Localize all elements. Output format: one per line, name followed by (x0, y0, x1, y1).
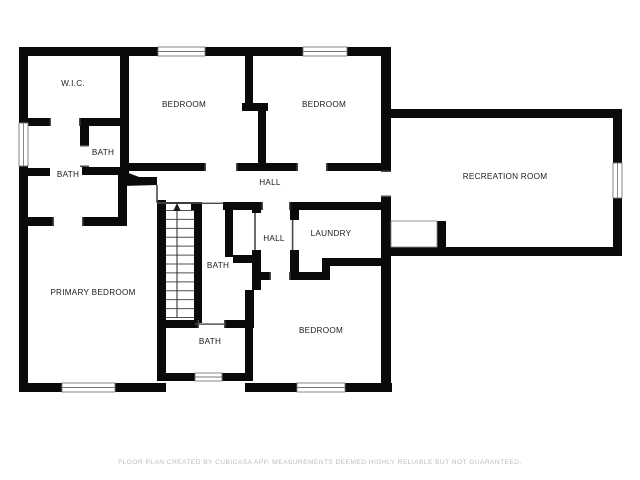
window (62, 383, 115, 392)
window (19, 123, 28, 166)
footer-disclaimer: FLOOR PLAN CREATED BY CUBICASA APP. MEAS… (118, 459, 522, 466)
room-label-hall-lower: HALL (263, 234, 285, 243)
room-label-hall-upper: HALL (259, 178, 281, 187)
room-label-wic: W.I.C. (61, 79, 85, 88)
room-label-primary-bedroom: PRIMARY BEDROOM (50, 288, 135, 297)
stair-up-arrow-icon (173, 203, 181, 211)
floor-plan-page: W.I.C.BEDROOMBEDROOMRECREATION ROOMBATHB… (0, 0, 640, 480)
window (613, 163, 622, 198)
window (158, 47, 205, 56)
staircase (166, 203, 194, 318)
window (195, 373, 222, 381)
room-label-bath-small: BATH (92, 148, 114, 157)
room-label-recreation-room: RECREATION ROOM (463, 172, 548, 181)
room-label-laundry: LAUNDRY (311, 229, 352, 238)
room-label-bedroom-2: BEDROOM (302, 100, 346, 109)
room-label-bath-middle: BATH (207, 261, 229, 270)
window (297, 383, 345, 392)
window (303, 47, 347, 56)
walls (19, 47, 622, 392)
recreation-room-alcove (391, 221, 437, 247)
room-label-bedroom-3: BEDROOM (299, 326, 343, 335)
room-label-bath-left: BATH (57, 170, 79, 179)
room-label-bath-lower: BATH (199, 337, 221, 346)
room-label-bedroom-1: BEDROOM (162, 100, 206, 109)
stair-treads (166, 211, 194, 318)
floor-plan-drawing: W.I.C.BEDROOMBEDROOMRECREATION ROOMBATHB… (0, 0, 640, 480)
